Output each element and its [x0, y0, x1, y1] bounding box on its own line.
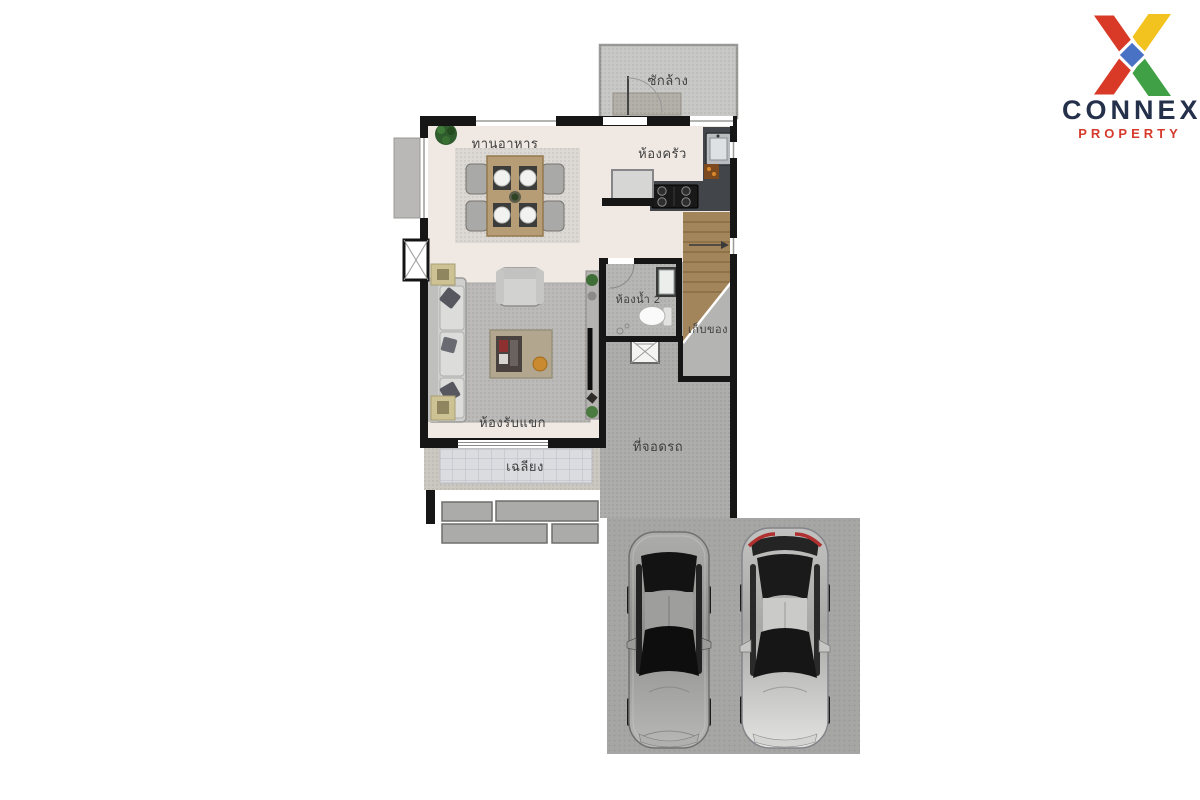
stove — [652, 185, 698, 208]
tv — [588, 328, 593, 390]
connex-logo: CONNEX PROPERTY — [1062, 14, 1198, 136]
coffee-table — [490, 330, 552, 378]
label-bathroom2: ห้องน้ำ 2 — [600, 290, 676, 308]
logo-brand-text: CONNEX — [1062, 96, 1198, 124]
console-plant-top — [586, 274, 598, 286]
label-living: ห้องรับแขก — [460, 412, 565, 433]
ac-unit — [404, 240, 428, 280]
logo-tagline-text: PROPERTY — [1062, 126, 1198, 141]
window-ledge — [394, 138, 420, 218]
car-grey-sedan — [625, 530, 713, 752]
connex-x-icon — [1080, 14, 1180, 96]
washing-machine — [631, 340, 659, 363]
dining-table — [487, 156, 543, 236]
label-porch: เฉลียง — [480, 456, 570, 477]
page: ซักล้าง ทานอาหาร ห้องครัว ห้องน้ำ 2 เก็บ… — [0, 0, 1200, 800]
paving-slabs — [442, 501, 598, 543]
porch-sliding-door — [458, 440, 548, 448]
fence-stub — [426, 490, 435, 524]
car-silver-sedan — [737, 526, 833, 752]
label-storage: เก็บของ — [672, 320, 744, 338]
fruit-bowl — [533, 357, 547, 371]
driveway — [607, 518, 860, 754]
label-kitchen: ห้องครัว — [615, 143, 710, 164]
bathroom-door-opening — [608, 258, 634, 264]
tv-console — [586, 271, 599, 419]
corner-plant — [435, 123, 457, 145]
label-laundry: ซักล้าง — [628, 70, 708, 91]
toilet — [639, 307, 672, 327]
label-parking: ที่จอดรถ — [610, 436, 706, 457]
armchair — [496, 268, 544, 306]
kitchen-basket — [704, 164, 719, 179]
console-plant-bottom — [586, 406, 598, 418]
laundry-door-opening — [603, 117, 647, 125]
label-dining: ทานอาหาร — [455, 133, 555, 154]
